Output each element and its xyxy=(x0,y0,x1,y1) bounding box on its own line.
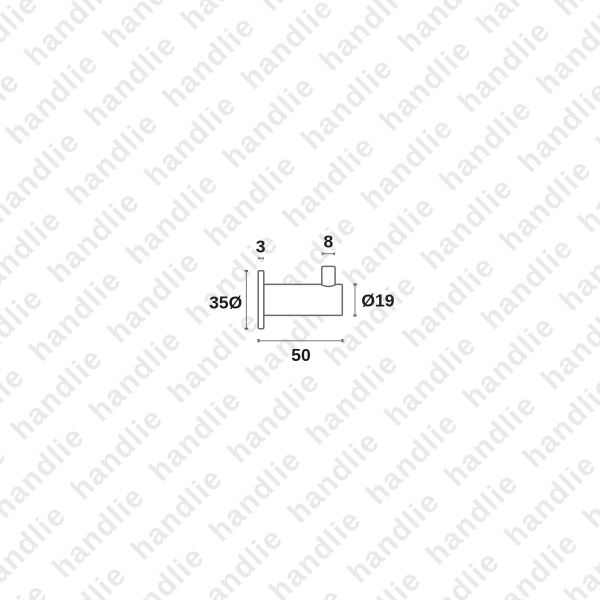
svg-text:3: 3 xyxy=(256,236,266,256)
svg-text:35Ø: 35Ø xyxy=(209,292,242,312)
svg-text:8: 8 xyxy=(324,232,334,252)
svg-text:50: 50 xyxy=(291,345,311,365)
svg-text:Ø19: Ø19 xyxy=(361,290,394,310)
